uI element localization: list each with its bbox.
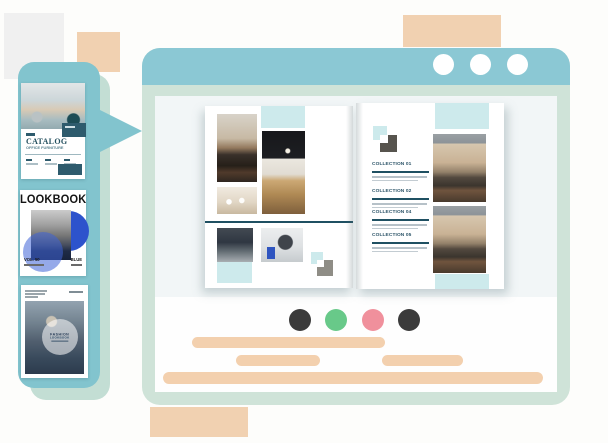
collection-underline — [372, 198, 429, 200]
nav-dot-green[interactable] — [325, 309, 347, 331]
collection-underline — [372, 219, 429, 221]
accent-block — [217, 262, 252, 283]
cover-title: CATALOG — [26, 137, 67, 146]
thumbnail-lookbook-cover[interactable]: LOOKBOOK VOL. 50 BLUE — [20, 190, 86, 276]
window-control-dot[interactable] — [507, 54, 528, 75]
placeholder-text-line — [372, 247, 427, 249]
placeholder-text-column — [45, 159, 57, 165]
window-control-dot[interactable] — [470, 54, 491, 75]
placeholder-text-line — [372, 251, 418, 253]
nav-dot-pink[interactable] — [362, 309, 384, 331]
cover-title: LOOKBOOK — [20, 193, 86, 206]
cover-volume-label: VOL. 50 — [24, 258, 40, 262]
divider-rule — [205, 221, 353, 223]
placeholder-bar — [236, 355, 320, 366]
placeholder-text-line — [372, 180, 418, 182]
sidebar-panel: CATALOG OFFICE FURNITURE LOOKBOOK VOL. 5… — [18, 62, 100, 388]
photo-desk-chair — [261, 228, 303, 262]
thumbnail-fashion-cover[interactable]: FASHION LOOKBOOK — [21, 285, 88, 378]
cover-logo-mark — [26, 133, 35, 136]
collection-underline — [372, 171, 429, 173]
accent-block — [261, 106, 305, 128]
window-control-dot[interactable] — [433, 54, 454, 75]
placeholder-text-line — [69, 291, 83, 293]
collection-label: COLLECTION 01 — [372, 161, 429, 166]
placeholder-bar — [382, 355, 463, 366]
placeholder-text-line — [372, 176, 427, 178]
collection-item: COLLECTION 05 — [372, 232, 429, 252]
placeholder-text-line — [25, 290, 47, 292]
placeholder-text-line — [52, 340, 69, 341]
nav-dot-dark[interactable] — [398, 309, 420, 331]
placeholder-text-line — [372, 203, 427, 205]
placeholder-text-column — [26, 159, 38, 165]
catalog-page-right: COLLECTION 01 COLLECTION 02 COLLECTION 0… — [356, 103, 504, 289]
cover-subtitle: OFFICE FURNITURE — [26, 146, 89, 150]
logo-square-gray — [317, 260, 333, 276]
placeholder-text-line — [372, 228, 418, 230]
photo-hotel-lobby-1 — [433, 134, 486, 202]
blue-circle-overlay — [23, 232, 63, 272]
placeholder-text-line — [71, 264, 82, 266]
photo-loft-lounge — [217, 114, 257, 182]
browser-titlebar — [142, 48, 570, 85]
collection-label: COLLECTION 02 — [372, 188, 429, 193]
blue-cabinet-detail — [267, 247, 275, 259]
collection-item: COLLECTION 01 — [372, 161, 429, 181]
accent-block — [435, 103, 489, 129]
step-squares-logo-icon — [311, 252, 335, 276]
cover-circle-badge: FASHION LOOKBOOK — [42, 319, 78, 355]
circle-badge-text: FASHION LOOKBOOK — [50, 333, 70, 341]
cover-accent-box — [58, 164, 82, 175]
placeholder-bar — [163, 372, 543, 384]
photo-white-chairs — [217, 187, 257, 214]
placeholder-text-line — [25, 296, 38, 298]
placeholder-bar — [192, 337, 385, 348]
placeholder-text-line — [25, 293, 45, 295]
photo-hotel-lobby-2 — [433, 206, 486, 273]
catalog-page-left — [205, 106, 353, 288]
cover-subtitle: LOOKBOOK — [50, 336, 70, 339]
nav-dot-dark[interactable] — [289, 309, 311, 331]
cover-tag-label: BLUE — [71, 258, 82, 262]
cover-rule — [25, 154, 81, 155]
thumbnail-catalog-cover[interactable]: CATALOG OFFICE FURNITURE — [21, 83, 85, 179]
collection-item: COLLECTION 04 — [372, 209, 429, 229]
collection-list: COLLECTION 01 COLLECTION 02 COLLECTION 0… — [372, 103, 429, 289]
sidebar-pointer-icon — [96, 108, 142, 154]
photo-dark-office — [217, 228, 253, 262]
cover-accent-box — [62, 123, 86, 137]
accent-block — [435, 274, 489, 289]
decor-peach-rect-top-right — [403, 15, 501, 47]
placeholder-text-line — [372, 224, 427, 226]
collection-item: COLLECTION 02 — [372, 188, 429, 208]
placeholder-text-line — [24, 264, 44, 266]
placeholder-text-line — [372, 207, 418, 209]
collection-label: COLLECTION 04 — [372, 209, 429, 214]
decor-peach-rect-bottom — [150, 407, 248, 437]
photo-wood-table — [262, 131, 305, 214]
collection-underline — [372, 242, 429, 244]
collection-label: COLLECTION 05 — [372, 232, 429, 237]
